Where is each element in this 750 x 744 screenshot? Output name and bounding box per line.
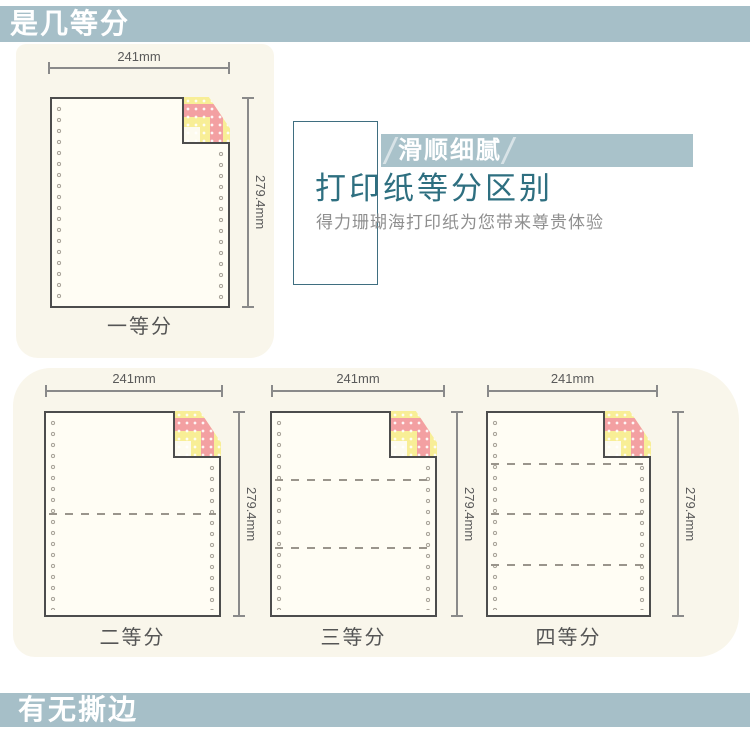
paper-division-diagram: 241mm 279.4mm 三等分	[262, 368, 492, 664]
diagram-caption: 四等分	[486, 621, 651, 650]
tractor-feed-holes-right	[208, 463, 216, 610]
division-dash-line	[275, 479, 432, 481]
height-dimension-line	[247, 97, 249, 308]
height-dimension-label: 279.4mm	[462, 411, 477, 617]
product-detail-page: 是几等分 241mm 279.4mm 一等分 241mm	[0, 0, 750, 744]
division-dash-line	[491, 463, 646, 465]
division-dash-line	[49, 513, 216, 515]
width-dimension-line	[48, 67, 230, 69]
feature-badge-banner: 滑顺细腻	[381, 134, 693, 167]
height-dimension-line	[456, 411, 458, 617]
paper-division-diagram: 241mm 279.4mm 二等分	[36, 368, 276, 664]
diagram-caption: 二等分	[44, 621, 221, 650]
division-dash-line	[491, 564, 646, 566]
section-footer-title: 有无撕边	[18, 693, 138, 727]
tractor-feed-holes-right	[638, 463, 646, 610]
width-dimension-line	[487, 390, 658, 392]
paper-division-diagram: 241mm 279.4mm 四等分	[478, 368, 708, 664]
info-title: 打印纸等分区别	[315, 172, 553, 206]
height-dimension-label: 279.4mm	[253, 97, 268, 308]
tractor-feed-holes-right	[424, 463, 432, 610]
info-subtitle: 得力珊瑚海打印纸为您带来尊贵体验	[316, 212, 604, 233]
paper-division-diagram: 241mm 279.4mm 一等分	[40, 48, 280, 348]
height-dimension-label: 279.4mm	[244, 411, 259, 617]
paper-sheet	[50, 97, 230, 308]
width-dimension-label: 241mm	[487, 371, 658, 386]
paper-fold-corner-icon	[173, 411, 221, 458]
slash-decoration-icon	[501, 137, 517, 164]
slash-decoration-icon	[383, 137, 399, 164]
section-footer-bar: 有无撕边	[0, 693, 750, 727]
width-dimension-line	[45, 390, 223, 392]
paper-fold-corner-icon	[389, 411, 437, 458]
section-header-title: 是几等分	[10, 7, 130, 41]
width-dimension-label: 241mm	[271, 371, 445, 386]
tractor-feed-holes-left	[55, 104, 63, 301]
division-dash-line	[491, 513, 646, 515]
paper-sheet	[44, 411, 221, 617]
height-dimension-label: 279.4mm	[683, 411, 698, 617]
tractor-feed-holes-right	[217, 149, 225, 301]
division-dash-line	[275, 547, 432, 549]
paper-sheet	[270, 411, 437, 617]
width-dimension-label: 241mm	[48, 49, 230, 64]
width-dimension-line	[271, 390, 445, 392]
diagram-caption: 一等分	[50, 310, 230, 339]
paper-fold-corner-icon	[603, 411, 651, 458]
paper-fold-corner-icon	[182, 97, 230, 144]
feature-badge-label: 滑顺细腻	[398, 136, 502, 165]
tractor-feed-holes-left	[275, 418, 283, 610]
height-dimension-line	[238, 411, 240, 617]
height-dimension-line	[677, 411, 679, 617]
section-header-bar: 是几等分	[0, 6, 750, 42]
diagram-caption: 三等分	[270, 621, 437, 650]
paper-sheet	[486, 411, 651, 617]
width-dimension-label: 241mm	[45, 371, 223, 386]
